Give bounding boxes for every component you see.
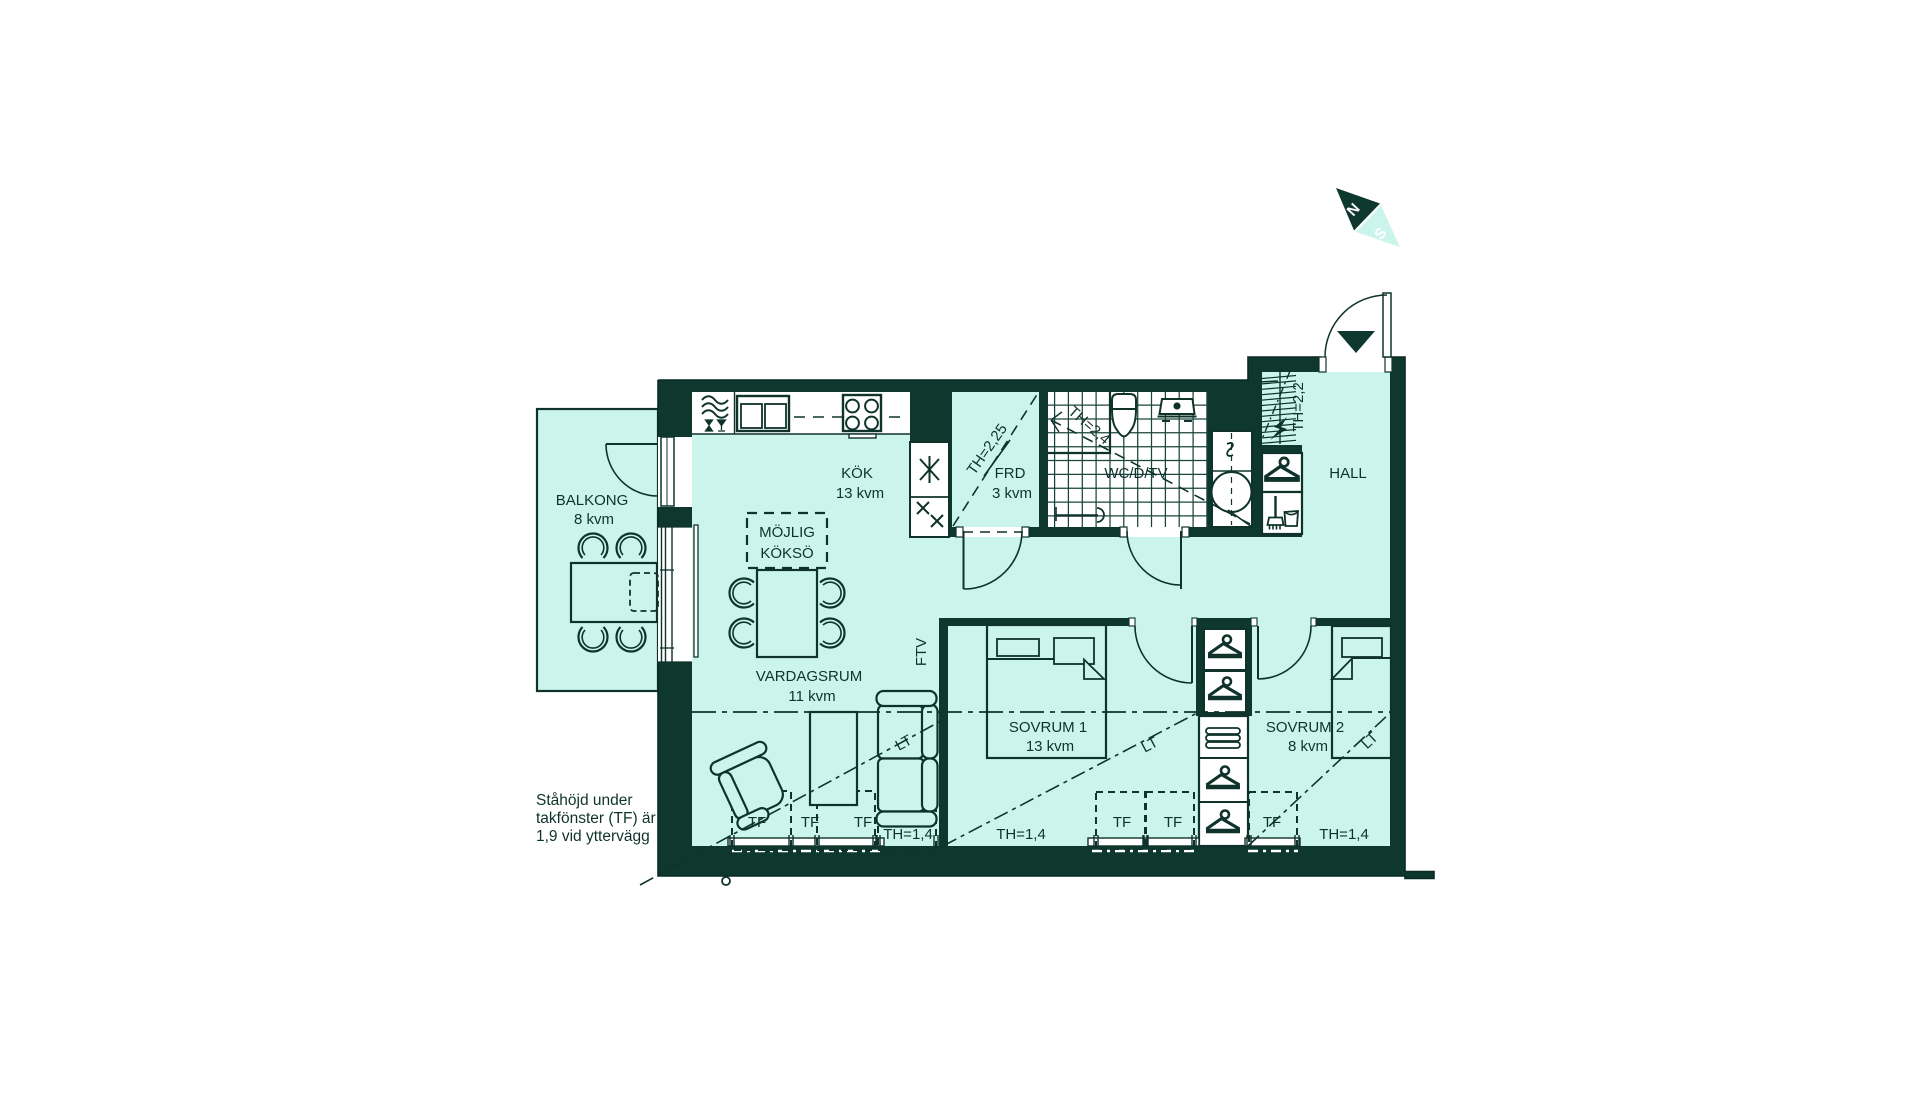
svg-text:WC/D/TV: WC/D/TV: [1104, 465, 1167, 482]
svg-text:MÖJLIG: MÖJLIG: [759, 523, 815, 541]
svg-text:HALL: HALL: [1329, 465, 1367, 482]
svg-text:13 kvm: 13 kvm: [836, 485, 884, 502]
svg-text:Ståhöjd under: Ståhöjd under: [536, 792, 633, 809]
svg-text:TF: TF: [748, 814, 766, 831]
svg-text:FTV: FTV: [913, 638, 930, 666]
svg-text:VARDAGSRUM: VARDAGSRUM: [756, 668, 862, 685]
svg-text:TF: TF: [854, 814, 872, 831]
svg-text:FRD: FRD: [995, 465, 1026, 482]
svg-text:TH=1,4: TH=1,4: [1319, 826, 1369, 843]
svg-text:11 kvm: 11 kvm: [788, 688, 835, 705]
svg-text:TF: TF: [1113, 814, 1131, 831]
svg-text:13 kvm: 13 kvm: [1026, 738, 1074, 755]
svg-text:TF: TF: [1164, 814, 1182, 831]
svg-text:TF: TF: [801, 814, 819, 831]
svg-text:TF: TF: [1263, 814, 1281, 831]
svg-text:SOVRUM 2: SOVRUM 2: [1266, 719, 1344, 736]
svg-text:takfönster (TF) är: takfönster (TF) är: [536, 810, 656, 827]
svg-text:8 kvm: 8 kvm: [574, 511, 614, 528]
svg-text:TH=1,4: TH=1,4: [883, 826, 933, 843]
svg-text:SOVRUM 1: SOVRUM 1: [1009, 719, 1087, 736]
svg-text:BALKONG: BALKONG: [556, 492, 629, 509]
svg-text:KÖK: KÖK: [841, 464, 873, 482]
svg-text:1,9 vid yttervägg: 1,9 vid yttervägg: [536, 828, 650, 845]
svg-text:8 kvm: 8 kvm: [1288, 738, 1328, 755]
svg-text:TH=1,4: TH=1,4: [996, 826, 1046, 843]
svg-text:TH=2,2: TH=2,2: [1290, 382, 1307, 432]
svg-text:3 kvm: 3 kvm: [992, 485, 1032, 502]
svg-text:KÖKSÖ: KÖKSÖ: [760, 544, 813, 562]
